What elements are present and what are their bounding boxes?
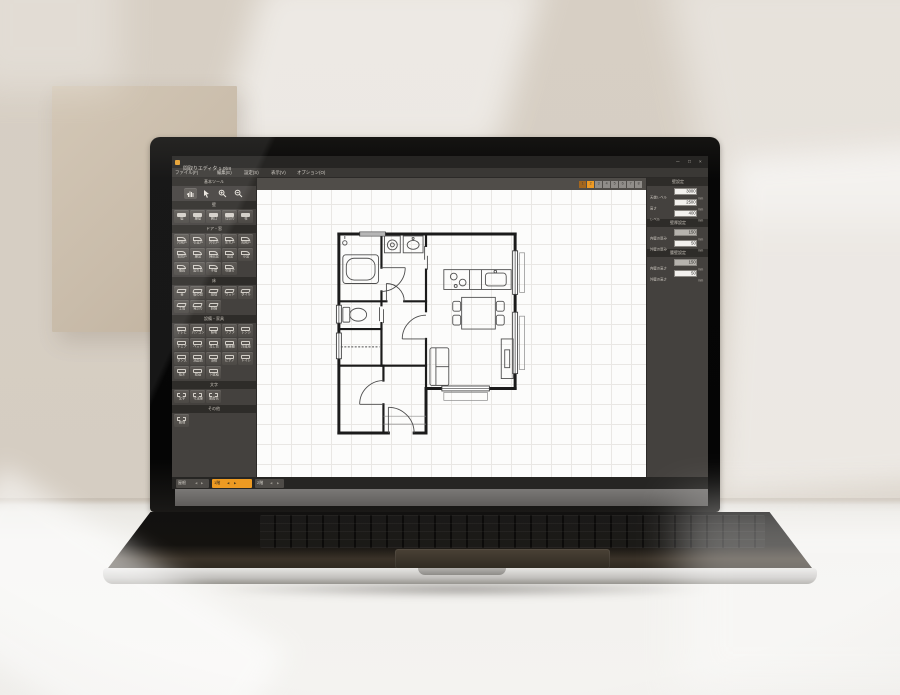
laptop-lid-notch xyxy=(418,568,506,575)
palette-button[interactable]: 土間 xyxy=(174,300,189,313)
palette-button-label: 掃出窓 xyxy=(206,255,221,260)
palette-button-label: 見切り xyxy=(190,307,205,312)
field-unit: mm xyxy=(698,260,706,266)
floor-tab[interactable]: 屋根◀▶ xyxy=(176,479,209,488)
palette-button[interactable]: タイル xyxy=(238,286,253,299)
palette-button-label: 開口 xyxy=(206,217,221,222)
palette-button-label: 片引戸 xyxy=(206,241,221,246)
palette-button-label: 片開戸 xyxy=(174,241,189,246)
palette-button[interactable]: 出窓 xyxy=(222,248,237,261)
palette-button[interactable]: タンス xyxy=(174,352,189,365)
select-cursor-icon xyxy=(202,189,211,198)
floorplan-drawing xyxy=(327,222,527,446)
palette-button-label: 土間 xyxy=(174,307,189,312)
field-input: 150 xyxy=(674,259,697,266)
menu-item[interactable]: 設定(S) xyxy=(244,168,271,178)
palette-button-label: ウッド xyxy=(222,293,237,298)
palette-button-label: 引違戸 xyxy=(190,241,205,246)
palette-button-label: 寸法線 xyxy=(190,397,205,402)
basic-tools-row xyxy=(172,186,256,201)
palette-button-label: 小窓 xyxy=(238,255,253,260)
palette-button[interactable]: 手摺 xyxy=(206,262,221,275)
field-label: 高さ xyxy=(650,200,674,206)
tool-select-cursor-button[interactable] xyxy=(200,188,213,199)
palette-button-label: 敷地 xyxy=(174,421,189,426)
palette-button-label: パソコン xyxy=(190,331,205,336)
palette-button[interactable]: ベッド xyxy=(190,338,205,351)
palette-button[interactable]: 部屋名 xyxy=(206,390,221,403)
prev-arrow-icon[interactable]: ◀ xyxy=(227,479,232,487)
palette-button[interactable]: トイレ xyxy=(238,352,253,365)
tool-zoom-in-button[interactable] xyxy=(216,188,229,199)
palette-section-header: ドア・窓 xyxy=(172,225,256,233)
laptop-hinge xyxy=(175,489,708,506)
prev-arrow-icon[interactable]: ◀ xyxy=(270,479,275,487)
window-title: 間取りエディタ 1.0b8 xyxy=(183,158,673,167)
palette-button[interactable]: 腰壁 xyxy=(190,210,205,223)
wall-light-corner xyxy=(0,0,120,90)
palette-button-label: 壁 xyxy=(178,217,186,222)
palette-button-label: 畳 xyxy=(178,293,186,298)
floor-square[interactable]: 6 xyxy=(619,181,626,188)
maximize-button[interactable]: □ xyxy=(684,158,694,167)
palette-button-label: 折れ戸 xyxy=(222,241,237,246)
palette-button-label: 腰壁 xyxy=(190,217,205,222)
palette-button[interactable]: 仕切り xyxy=(222,210,237,223)
tool-zoom-out-button[interactable] xyxy=(232,188,245,199)
palette-button-label: 階段 xyxy=(174,269,189,274)
property-inspector: 壁設定天端レベル3000mm高さ2500mmレベル400mm壁厚設定内壁の厚み1… xyxy=(646,178,708,477)
palette-button[interactable]: 食器棚 xyxy=(222,338,237,351)
field-unit: mm xyxy=(698,241,706,247)
palette-button[interactable]: 吹抜け xyxy=(222,262,237,275)
zoom-in-icon xyxy=(218,189,227,198)
floor-square[interactable]: 7 xyxy=(627,181,634,188)
floor-square[interactable]: 5 xyxy=(611,181,618,188)
palette-button[interactable]: 片引戸 xyxy=(206,234,221,247)
floor-square[interactable]: 1 xyxy=(579,181,586,188)
tool-palette: 基本ツール壁壁腰壁開口仕切り柱ドア・窓片開戸引違戸片引戸折れ戸両開戸玄関戸腰窓掃… xyxy=(172,178,257,477)
room-photo: 間取りエディタ 1.0b8 ─ □ × ファイル(F)編集(E)設定(S)表示(… xyxy=(0,0,900,695)
field-unit: mm xyxy=(698,230,706,236)
field-label: 外壁の高さ xyxy=(650,271,674,277)
palette-button[interactable]: 階段 xyxy=(174,262,189,275)
field-input[interactable]: 50 xyxy=(674,270,697,277)
palette-button-label: 洗面台 xyxy=(190,359,205,364)
palette-button[interactable]: 下駄箱 xyxy=(206,366,221,379)
floor-square[interactable]: 8 xyxy=(635,181,642,188)
palette-button[interactable]: 腰窓 xyxy=(190,248,205,261)
next-arrow-icon[interactable]: ▶ xyxy=(201,479,206,487)
palette-button[interactable]: 絵画 xyxy=(190,366,205,379)
next-arrow-icon[interactable]: ▶ xyxy=(277,479,282,487)
palette-section-header: 文字 xyxy=(172,381,256,389)
palette-button-label: 下駄箱 xyxy=(206,373,221,378)
palette-button-label: 絨毯 xyxy=(206,293,221,298)
palette-button-label: 流し台 xyxy=(206,345,221,350)
palette-section-grid: テレビパソコン照明ソファレンジチェアベッド流し台食器棚冷蔵庫タンス洗面台浴槽ピア… xyxy=(172,323,256,381)
field-unit: mm xyxy=(698,271,706,277)
palette-button-label: レンジ xyxy=(238,331,253,336)
title-bar: 間取りエディタ 1.0b8 ─ □ × xyxy=(172,156,708,168)
field-label: 内壁の高さ xyxy=(650,260,674,266)
field-unit: mm xyxy=(698,200,706,206)
palette-button[interactable]: ウッド xyxy=(222,286,237,299)
floor-tab[interactable]: 1階◀▶ xyxy=(212,479,252,488)
palette-button-label: 冷蔵庫 xyxy=(238,345,253,350)
floor-selector-strip: 12345678 xyxy=(257,178,646,190)
field-input[interactable]: 400 xyxy=(674,210,697,217)
inspector-field-row: 内壁の高さ150mm xyxy=(647,257,708,268)
palette-section-header: その他 xyxy=(172,405,256,413)
palette-button-label: 柱 xyxy=(242,217,250,222)
wall-light-streak xyxy=(716,143,900,498)
palette-button[interactable]: 洗面台 xyxy=(190,352,205,365)
floor-tab-label: 2階 xyxy=(257,479,269,487)
floor-tab-label: 1階 xyxy=(214,479,226,487)
palette-button[interactable]: 開口 xyxy=(206,210,221,223)
next-arrow-icon[interactable]: ▶ xyxy=(234,479,239,487)
palette-section-header: 床 xyxy=(172,277,256,285)
palette-button[interactable]: ソファ xyxy=(222,324,237,337)
field-label: 内壁の厚み xyxy=(650,230,674,236)
zoom-out-icon xyxy=(234,189,243,198)
palette-button-label: 吹抜け xyxy=(222,269,237,274)
palette-button-label: 文字 xyxy=(174,397,189,402)
palette-button[interactable]: 照明 xyxy=(206,324,221,337)
field-label: 天端レベル xyxy=(650,189,674,195)
palette-button-label: 食器棚 xyxy=(222,345,237,350)
hand-icon xyxy=(186,189,195,198)
palette-button[interactable]: 畳 xyxy=(174,286,189,299)
palette-button-label: 浴槽 xyxy=(206,359,221,364)
tool-hand-button[interactable] xyxy=(184,188,197,199)
palette-button-label: 廻り段 xyxy=(190,269,205,274)
field-input[interactable]: 3000 xyxy=(674,188,697,195)
palette-button-label: 照明 xyxy=(206,331,221,336)
palette-section-header: 壁 xyxy=(172,201,256,209)
field-label: レベル xyxy=(650,211,674,217)
palette-button[interactable]: 浴槽 xyxy=(206,352,221,365)
app-window: 間取りエディタ 1.0b8 ─ □ × ファイル(F)編集(E)設定(S)表示(… xyxy=(172,156,708,489)
floor-tab[interactable]: 2階◀▶ xyxy=(255,479,284,488)
palette-button[interactable]: 冷蔵庫 xyxy=(238,338,253,351)
field-input: 150 xyxy=(674,229,697,236)
close-button[interactable]: × xyxy=(695,158,705,167)
palette-button[interactable]: テレビ xyxy=(174,324,189,337)
palette-button-label: トイレ xyxy=(238,359,253,364)
palette-button[interactable]: 見切り xyxy=(190,300,205,313)
palette-button-label: タンス xyxy=(174,359,189,364)
palette-button[interactable]: 掃出窓 xyxy=(206,248,221,261)
palette-button[interactable]: 小窓 xyxy=(238,248,253,261)
app-icon xyxy=(175,160,180,165)
field-input[interactable]: 2500 xyxy=(674,199,697,206)
palette-button[interactable]: 絨毯 xyxy=(206,286,221,299)
palette-section-grid: 敷地 xyxy=(172,413,256,429)
inspector-field-row: 天端レベル3000mm xyxy=(647,186,708,197)
field-label: 外壁の厚み xyxy=(650,241,674,247)
palette-button-label: 仕切り xyxy=(222,217,237,222)
palette-button[interactable]: 廻り段 xyxy=(190,262,205,275)
palette-button-label: ベッド xyxy=(190,345,205,350)
palette-section-grid: 壁腰壁開口仕切り柱 xyxy=(172,209,256,225)
menu-item[interactable]: 表示(V) xyxy=(271,168,298,178)
palette-section-header: 設備・家具 xyxy=(172,315,256,323)
palette-button-label: 板の間 xyxy=(190,293,205,298)
palette-section-grid: 畳板の間絨毯ウッドタイル土間見切り斜線 xyxy=(172,285,256,315)
palette-button-label: ソファ xyxy=(222,331,237,336)
drawing-canvas[interactable] xyxy=(257,190,646,477)
prev-arrow-icon[interactable]: ◀ xyxy=(195,479,200,487)
palette-button[interactable]: 壁 xyxy=(174,210,189,223)
palette-button-label: 部屋名 xyxy=(206,397,221,402)
menu-item[interactable]: オプション(O) xyxy=(297,168,349,178)
palette-button[interactable]: 折れ戸 xyxy=(222,234,237,247)
palette-button[interactable]: 流し台 xyxy=(206,338,221,351)
palette-button-label: チェア xyxy=(174,345,189,350)
palette-button[interactable]: 文字 xyxy=(174,390,189,403)
palette-button[interactable]: 片開戸 xyxy=(174,234,189,247)
laptop-trackpad xyxy=(395,549,610,569)
field-unit: mm xyxy=(698,211,706,217)
laptop-keyboard xyxy=(260,515,765,548)
palette-button[interactable]: レンジ xyxy=(238,324,253,337)
palette-button-label: 植木 xyxy=(174,373,189,378)
palette-button-label: 腰窓 xyxy=(190,255,205,260)
palette-button[interactable]: 引違戸 xyxy=(190,234,205,247)
palette-button[interactable]: パソコン xyxy=(190,324,205,337)
palette-button-label: 出窓 xyxy=(222,255,237,260)
palette-button-label: タイル xyxy=(238,293,253,298)
palette-button-label: 手摺 xyxy=(206,269,221,274)
palette-button-label: 玄関戸 xyxy=(174,255,189,260)
floor-square[interactable]: 3 xyxy=(595,181,602,188)
palette-button[interactable]: ピアノ xyxy=(222,352,237,365)
palette-button[interactable]: 敷地 xyxy=(174,414,189,427)
palette-section-grid: 文字寸法線部屋名 xyxy=(172,389,256,405)
palette-button[interactable]: 斜線 xyxy=(206,300,221,313)
wall-light-patch xyxy=(216,0,545,150)
palette-button[interactable]: 板の間 xyxy=(190,286,205,299)
floor-tab-label: 屋根 xyxy=(178,479,194,487)
palette-button-label: 絵画 xyxy=(190,373,205,378)
palette-button[interactable]: 玄関戸 xyxy=(174,248,189,261)
palette-button-label: 斜線 xyxy=(206,307,221,312)
palette-button-label: ピアノ xyxy=(222,359,237,364)
floor-tab-bar: 屋根◀▶1階◀▶2階◀▶ xyxy=(172,477,708,489)
inspector-section-header: 壁設定 xyxy=(647,178,708,186)
minimize-button[interactable]: ─ xyxy=(673,158,683,167)
palette-button[interactable]: 寸法線 xyxy=(190,390,205,403)
palette-button[interactable]: 柱 xyxy=(238,210,253,223)
field-input[interactable]: 50 xyxy=(674,240,697,247)
palette-button-label: 両開戸 xyxy=(238,241,253,246)
palette-section-grid: 片開戸引違戸片引戸折れ戸両開戸玄関戸腰窓掃出窓出窓小窓階段廻り段手摺吹抜け xyxy=(172,233,256,277)
field-unit: mm xyxy=(698,189,706,195)
palette-button-label: テレビ xyxy=(174,331,189,336)
palette-button[interactable]: 両開戸 xyxy=(238,234,253,247)
floor-square[interactable]: 4 xyxy=(603,181,610,188)
inspector-field-row: 内壁の厚み150mm xyxy=(647,227,708,238)
menu-bar: ファイル(F)編集(E)設定(S)表示(V)オプション(O) xyxy=(172,168,708,178)
palette-button[interactable]: 植木 xyxy=(174,366,189,379)
palette-section-header: 基本ツール xyxy=(172,178,256,186)
palette-button[interactable]: チェア xyxy=(174,338,189,351)
floor-square[interactable]: 2 xyxy=(587,181,594,188)
